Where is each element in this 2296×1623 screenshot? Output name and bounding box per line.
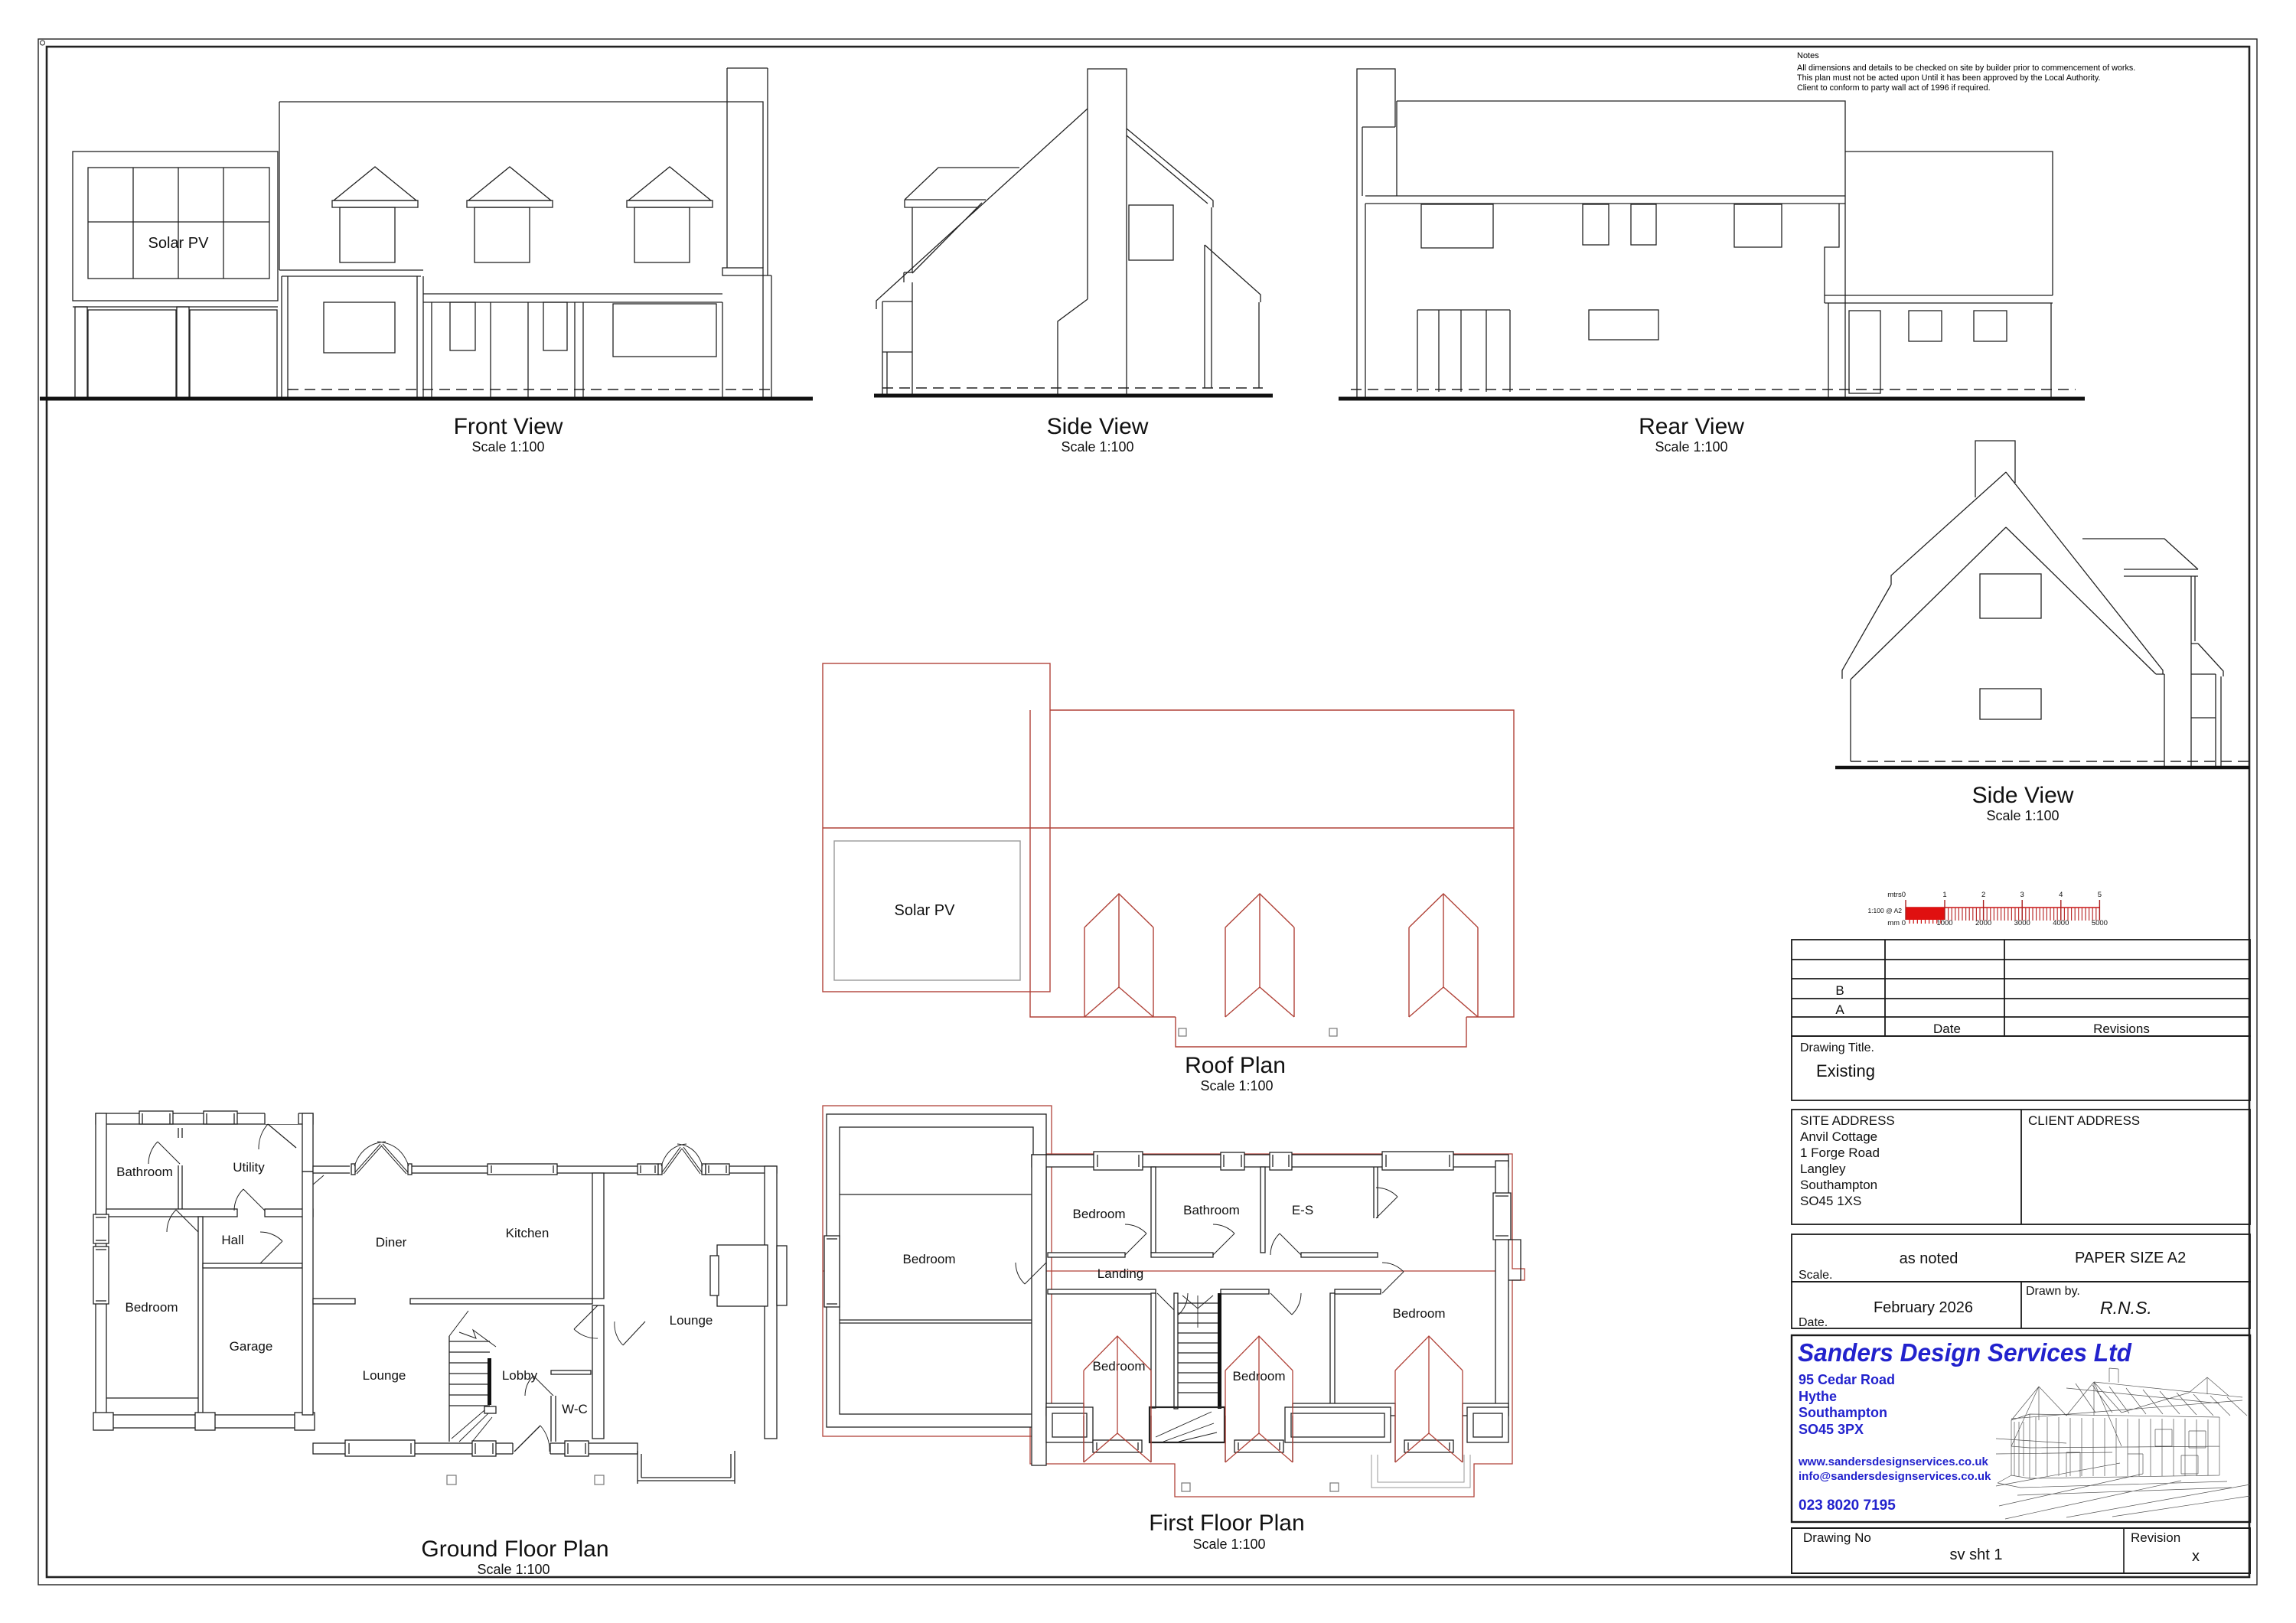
svg-text:Kitchen: Kitchen	[506, 1226, 550, 1240]
svg-text:SITE ADDRESS: SITE ADDRESS	[1800, 1113, 1895, 1128]
svg-text:Hythe: Hythe	[1799, 1389, 1837, 1404]
svg-text:Garage: Garage	[230, 1339, 273, 1354]
svg-text:Bathroom: Bathroom	[116, 1165, 173, 1179]
svg-text:Scale 1:100: Scale 1:100	[471, 439, 544, 455]
svg-text:Bedroom: Bedroom	[1393, 1306, 1446, 1321]
svg-text:2000: 2000	[1975, 919, 1991, 927]
svg-text:1000: 1000	[1936, 919, 1952, 927]
svg-text:Scale 1:100: Scale 1:100	[1986, 808, 2059, 823]
svg-text:Client to conform to party wal: Client to conform to party wall act of 1…	[1797, 83, 1991, 93]
svg-text:Roof Plan: Roof Plan	[1185, 1053, 1286, 1078]
svg-text:Existing: Existing	[1816, 1061, 1875, 1080]
svg-text:www.sandersdesignservices.co.u: www.sandersdesignservices.co.uk	[1798, 1455, 1989, 1468]
svg-text:Scale 1:100: Scale 1:100	[1200, 1078, 1273, 1093]
svg-text:023 8020 7195: 023 8020 7195	[1799, 1498, 1896, 1514]
svg-text:3000: 3000	[2014, 919, 2030, 927]
svg-text:PAPER SIZE A2: PAPER SIZE A2	[2075, 1250, 2186, 1266]
svg-text:February 2026: February 2026	[1874, 1299, 1973, 1316]
svg-text:Diner: Diner	[376, 1235, 407, 1250]
svg-text:Sanders Design Services Ltd: Sanders Design Services Ltd	[1798, 1338, 2132, 1367]
svg-text:Utility: Utility	[233, 1160, 265, 1175]
svg-text:Ground Floor Plan: Ground Floor Plan	[421, 1537, 608, 1562]
svg-text:Southampton: Southampton	[1800, 1178, 1877, 1192]
svg-text:Scale 1:100: Scale 1:100	[1192, 1537, 1265, 1552]
svg-text:Side View: Side View	[1972, 783, 2074, 808]
svg-text:Drawn by.: Drawn by.	[2026, 1285, 2080, 1298]
svg-text:mm 0: mm 0	[1887, 919, 1906, 927]
svg-text:Bedroom: Bedroom	[1073, 1207, 1126, 1221]
svg-text:1: 1	[1942, 891, 1946, 899]
svg-text:5: 5	[2098, 891, 2102, 899]
svg-text:sv sht 1: sv sht 1	[1950, 1546, 2003, 1563]
svg-text:Landing: Landing	[1097, 1266, 1144, 1281]
svg-text:3: 3	[2020, 891, 2024, 899]
svg-text:info@sandersdesignservices.co.: info@sandersdesignservices.co.uk	[1799, 1470, 1991, 1483]
svg-text:Lobby: Lobby	[502, 1368, 538, 1383]
svg-text:E-S: E-S	[1292, 1203, 1313, 1217]
svg-text:Front View: Front View	[454, 414, 563, 439]
svg-text:Lounge: Lounge	[363, 1368, 406, 1383]
svg-text:Bedroom: Bedroom	[126, 1300, 178, 1315]
svg-text:CLIENT ADDRESS: CLIENT ADDRESS	[2028, 1113, 2140, 1128]
svg-text:x: x	[2192, 1548, 2200, 1565]
svg-text:Solar PV: Solar PV	[895, 902, 956, 919]
svg-text:Scale 1:100: Scale 1:100	[1061, 439, 1133, 455]
svg-text:Revisions: Revisions	[2093, 1022, 2150, 1036]
svg-text:Hall: Hall	[221, 1233, 243, 1247]
svg-text:Bedroom: Bedroom	[1093, 1359, 1146, 1374]
svg-text:5000: 5000	[2092, 919, 2108, 927]
svg-text:R.N.S.: R.N.S.	[2100, 1298, 2152, 1318]
svg-text:Date.: Date.	[1799, 1316, 1828, 1329]
svg-text:4000: 4000	[2053, 919, 2069, 927]
svg-text:4: 4	[2059, 891, 2063, 899]
svg-text:Drawing Title.: Drawing Title.	[1800, 1041, 1874, 1054]
svg-text:SO45 1XS: SO45 1XS	[1800, 1194, 1861, 1208]
svg-text:Solar PV: Solar PV	[148, 235, 210, 252]
svg-text:First Floor Plan: First Floor Plan	[1149, 1511, 1304, 1536]
svg-text:This plan must not be acted up: This plan must not be acted upon Until i…	[1797, 73, 2101, 83]
svg-text:All dimensions and details to: All dimensions and details to be checked…	[1797, 64, 2135, 73]
svg-text:Revision: Revision	[2131, 1530, 2180, 1545]
svg-text:A: A	[1835, 1002, 1844, 1017]
svg-text:95 Cedar Road: 95 Cedar Road	[1799, 1372, 1895, 1387]
svg-text:Anvil Cottage: Anvil Cottage	[1800, 1129, 1877, 1144]
svg-text:B: B	[1835, 983, 1844, 998]
svg-text:Langley: Langley	[1800, 1162, 1846, 1176]
svg-text:Date: Date	[1933, 1022, 1961, 1036]
svg-text:Bedroom: Bedroom	[903, 1252, 956, 1266]
svg-text:mtrs0: mtrs0	[1887, 891, 1906, 899]
svg-text:Side View: Side View	[1047, 414, 1149, 439]
svg-text:as noted: as noted	[1900, 1250, 1958, 1267]
svg-text:1:100 @ A2: 1:100 @ A2	[1867, 907, 1902, 914]
svg-text:Scale.: Scale.	[1799, 1269, 1832, 1282]
svg-text:Southampton: Southampton	[1799, 1405, 1887, 1420]
svg-text:Lounge: Lounge	[670, 1313, 713, 1328]
svg-text:Bathroom: Bathroom	[1183, 1203, 1240, 1217]
svg-text:1 Forge Road: 1 Forge Road	[1800, 1146, 1880, 1160]
svg-text:Scale 1:100: Scale 1:100	[477, 1562, 550, 1577]
svg-text:W-C: W-C	[562, 1402, 588, 1416]
svg-text:Scale 1:100: Scale 1:100	[1655, 439, 1727, 455]
svg-text:Drawing No: Drawing No	[1803, 1530, 1871, 1545]
svg-text:SO45 3PX: SO45 3PX	[1799, 1422, 1864, 1437]
svg-text:2: 2	[1981, 891, 1985, 899]
svg-text:Rear View: Rear View	[1639, 414, 1744, 439]
svg-text:Notes: Notes	[1797, 51, 1819, 60]
